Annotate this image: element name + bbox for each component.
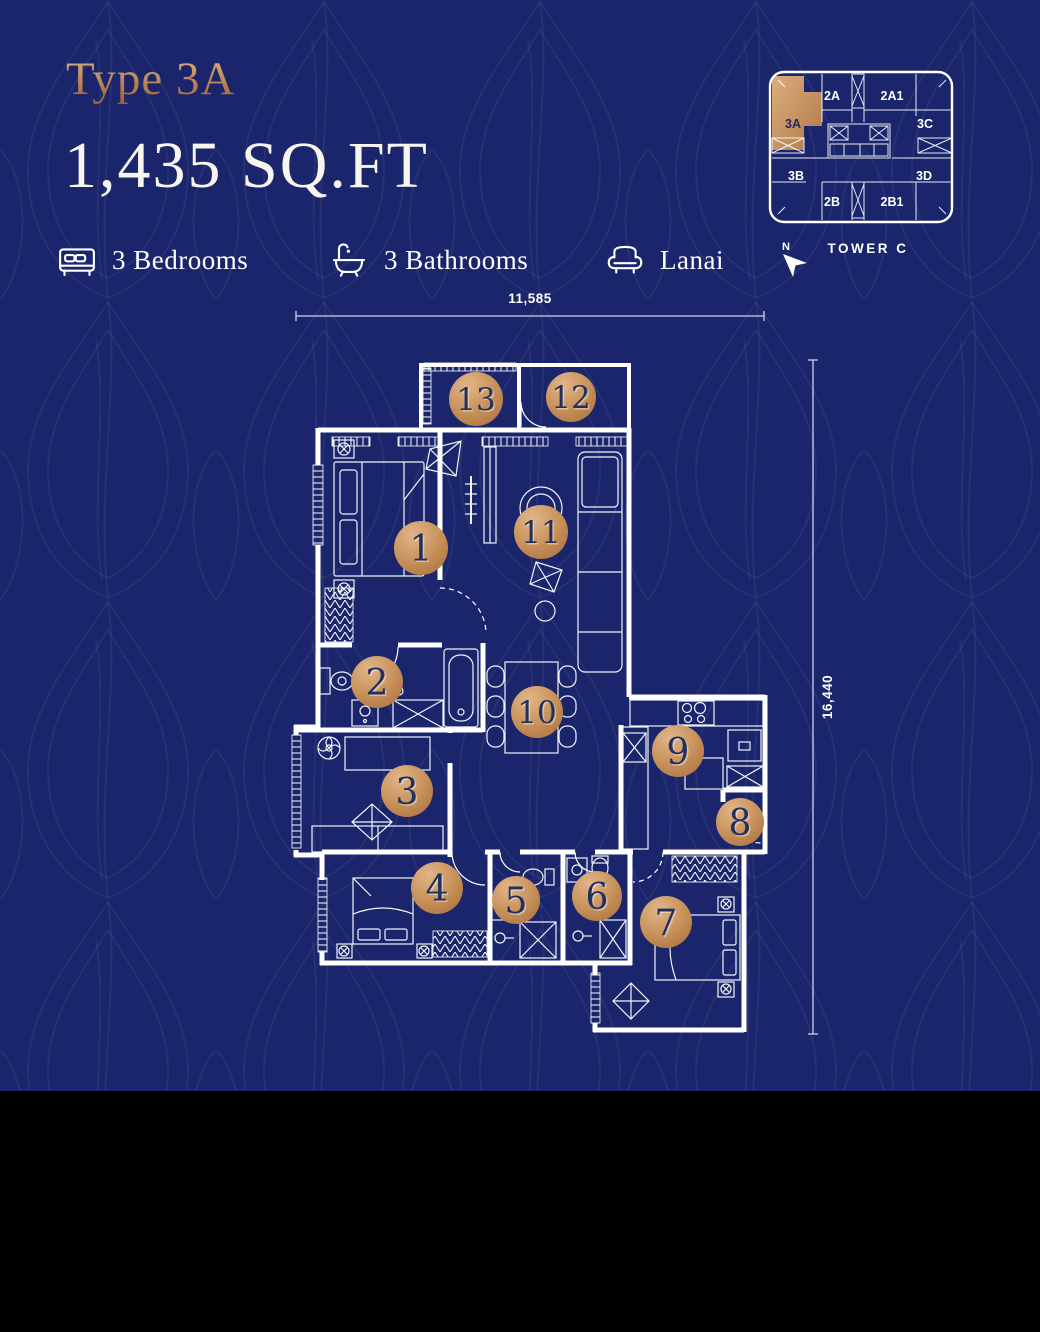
tower-key-plan: 2A2A13C3A3B3D2B2B1 N TOWER C [766, 66, 958, 284]
keyplan-unit-2b1: 2B1 [881, 195, 904, 209]
svg-text:9: 9 [667, 732, 690, 773]
svg-text:4: 4 [426, 869, 449, 910]
feature-bedrooms: 3 Bedrooms [56, 240, 328, 280]
keyplan-unit-2a: 2A [824, 89, 840, 103]
svg-text:7: 7 [655, 903, 678, 944]
feature-label: 3 Bathrooms [384, 245, 528, 276]
svg-text:10: 10 [517, 695, 556, 731]
feature-label: Lanai [660, 245, 724, 276]
north-label: N [782, 241, 790, 253]
keyplan-unit-3a: 3A [785, 117, 801, 131]
keyplan-unit-3c: 3C [917, 117, 933, 131]
feature-bathrooms: 3 Bathrooms [328, 240, 604, 280]
room-marker-6: 66 [572, 871, 622, 921]
room-marker-13: 1313 [449, 372, 503, 426]
svg-text:2: 2 [366, 663, 389, 704]
room-marker-8: 88 [716, 798, 764, 846]
keyplan-unit-2a1: 2A1 [881, 89, 904, 103]
feature-list: 3 Bedrooms 3 Bathrooms [56, 236, 776, 284]
room-marker-12: 1212 [546, 372, 596, 422]
keyplan-unit-3d: 3D [916, 169, 932, 183]
bed-icon [56, 240, 98, 280]
room-marker-3: 33 [381, 765, 433, 817]
room-marker-10: 1010 [511, 686, 563, 738]
svg-text:1: 1 [410, 529, 433, 570]
keyplan-unit-2b: 2B [824, 195, 840, 209]
dimension-height-label: 16,440 [820, 675, 835, 719]
unit-type-title: Type 3A [66, 52, 235, 106]
svg-text:3: 3 [396, 772, 419, 813]
wardrobe [433, 931, 487, 957]
room-marker-11: 1111 [514, 505, 568, 559]
keyplan-unit-3a-highlight [772, 76, 822, 150]
svg-text:11: 11 [521, 515, 560, 551]
room-marker-4: 44 [411, 862, 463, 914]
dimension-width-label: 11,585 [508, 291, 552, 306]
svg-text:6: 6 [586, 877, 609, 918]
room-marker-1: 11 [394, 521, 448, 575]
floor-plan: 11,585 16,440 [280, 290, 850, 1050]
svg-text:5: 5 [505, 881, 528, 922]
svg-text:12: 12 [551, 380, 590, 416]
bathtub-icon [328, 240, 370, 280]
footer-black-bar [0, 1091, 1040, 1332]
north-arrow-icon [783, 254, 807, 277]
keyplan-unit-3b: 3B [788, 169, 804, 183]
svg-text:8: 8 [729, 803, 752, 844]
room-marker-2: 22 [351, 656, 403, 708]
room-marker-9: 99 [652, 725, 704, 777]
room-marker-5: 55 [492, 876, 540, 924]
feature-lanai: Lanai [604, 240, 724, 280]
sofa-icon [604, 240, 646, 280]
feature-label: 3 Bedrooms [112, 245, 248, 276]
unit-area: 1,435 SQ.FT [64, 128, 429, 204]
room-marker-7: 77 [640, 896, 692, 948]
dimension-width: 11,585 [296, 291, 764, 321]
brochure-page: Type 3A 1,435 SQ.FT 3 Bedrooms [0, 0, 1040, 1091]
tower-label: TOWER C [828, 241, 909, 256]
wardrobe [325, 588, 353, 642]
dimension-height: 16,440 [808, 360, 835, 1034]
wardrobe [672, 856, 737, 882]
svg-text:13: 13 [456, 382, 495, 418]
